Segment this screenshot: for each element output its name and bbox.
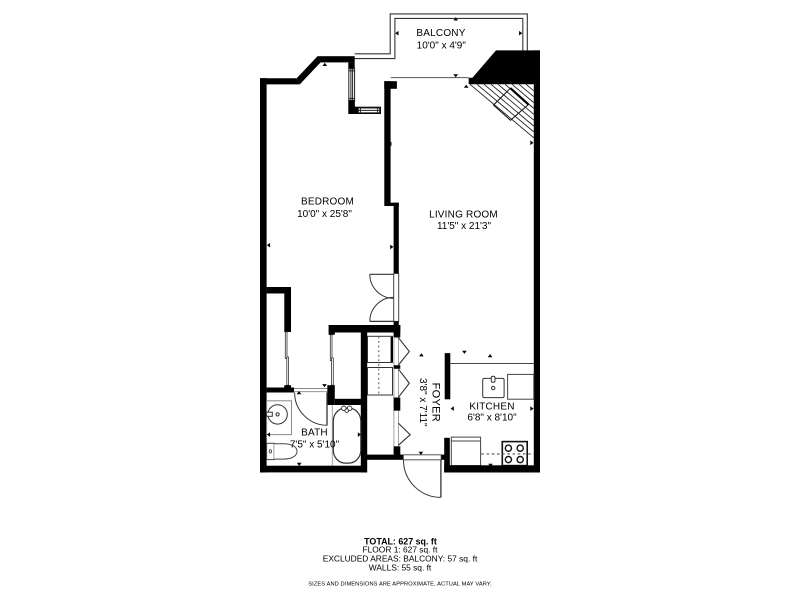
svg-text:BALCONY: BALCONY [416,28,465,39]
svg-text:10'0" x 25'8": 10'0" x 25'8" [297,209,352,220]
svg-text:3'8" x 7'11": 3'8" x 7'11" [417,378,428,427]
svg-text:FOYER: FOYER [430,383,442,422]
svg-text:10'0" x 4'9": 10'0" x 4'9" [417,41,467,52]
svg-text:LIVING ROOM: LIVING ROOM [429,209,498,220]
svg-text:BATH: BATH [301,428,328,439]
svg-text:BEDROOM: BEDROOM [301,197,354,208]
svg-text:SIZES AND DIMENSIONS ARE APPRO: SIZES AND DIMENSIONS ARE APPROXIMATE, AC… [308,581,492,587]
svg-text:11'5" x 21'3": 11'5" x 21'3" [437,221,492,232]
svg-text:6'8" x 8'10": 6'8" x 8'10" [467,413,517,424]
svg-text:KITCHEN: KITCHEN [469,402,514,413]
svg-text:WALLS: 55 sq. ft: WALLS: 55 sq. ft [369,563,432,573]
svg-text:7'5" x 5'10": 7'5" x 5'10" [290,439,340,450]
